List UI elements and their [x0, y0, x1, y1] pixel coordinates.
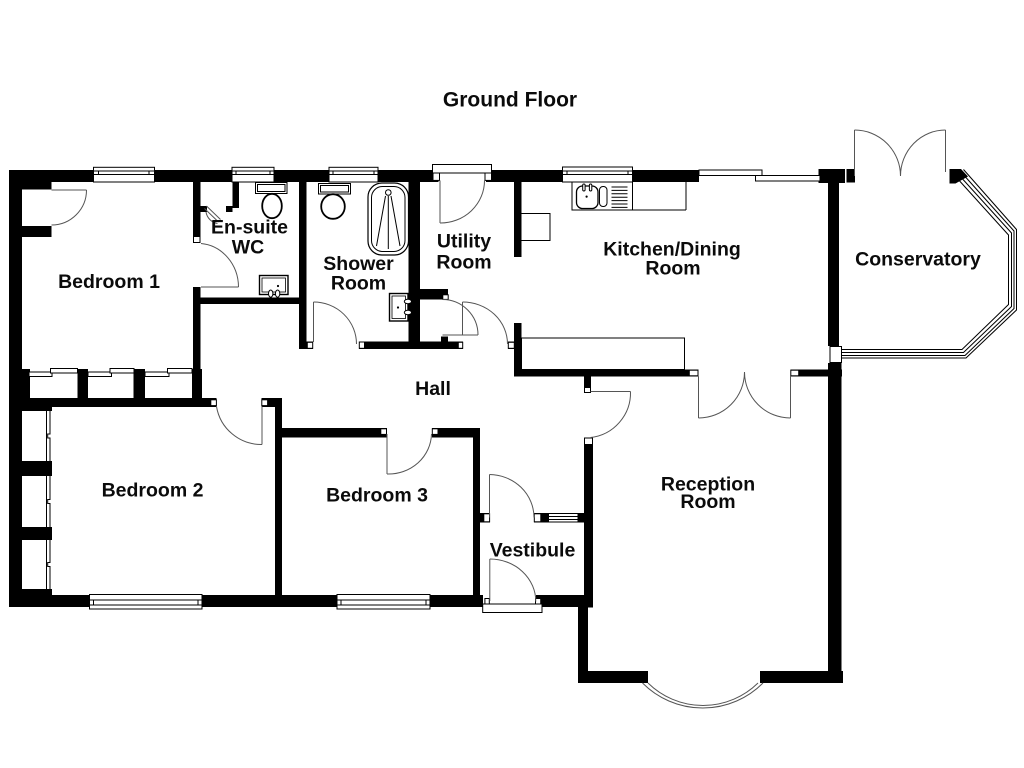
svg-text:WC: WC [232, 237, 265, 259]
svg-text:Utility: Utility [437, 231, 491, 253]
svg-text:En-suite: En-suite [211, 217, 288, 239]
svg-text:Ground Floor: Ground Floor [443, 89, 577, 112]
svg-text:Conservatory: Conservatory [855, 249, 981, 271]
svg-text:Room: Room [436, 252, 491, 274]
svg-text:Room: Room [331, 272, 386, 294]
svg-text:Bedroom 2: Bedroom 2 [102, 480, 204, 502]
svg-text:Bedroom 3: Bedroom 3 [326, 485, 428, 507]
svg-text:Hall: Hall [415, 378, 451, 400]
svg-text:Room: Room [680, 491, 735, 513]
svg-text:Bedroom 1: Bedroom 1 [58, 271, 160, 293]
svg-text:Room: Room [645, 258, 700, 280]
svg-text:Vestibule: Vestibule [490, 540, 576, 562]
